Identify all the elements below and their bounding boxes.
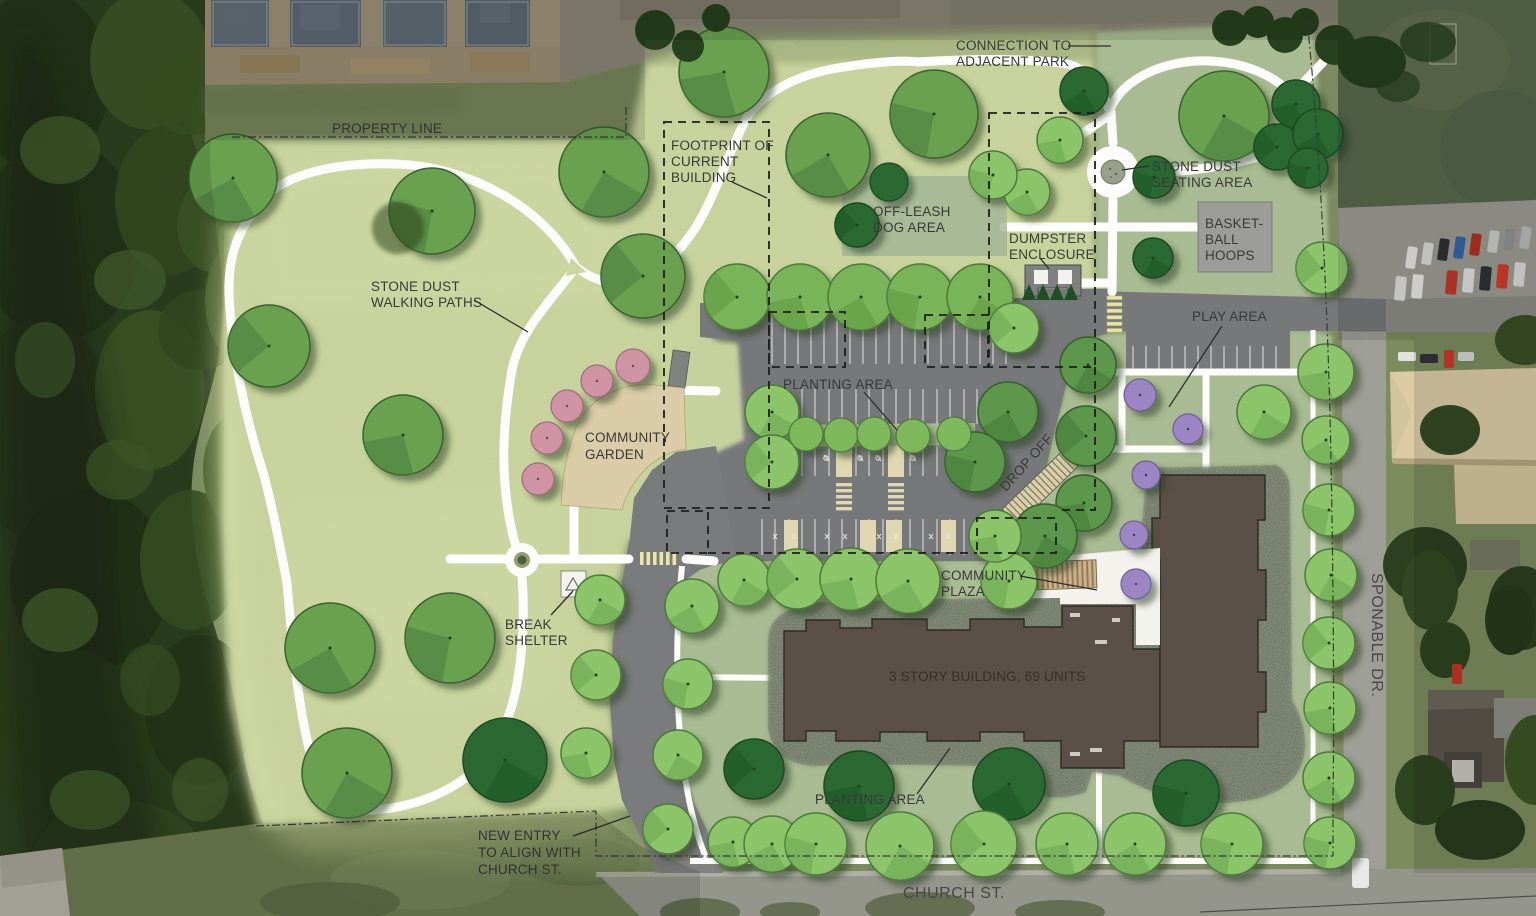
svg-text:ADJACENT PARK: ADJACENT PARK [956, 54, 1069, 69]
svg-text:STONE DUST: STONE DUST [371, 279, 460, 294]
svg-text:CURRENT: CURRENT [671, 154, 738, 169]
svg-text:BUILDING: BUILDING [671, 170, 736, 185]
svg-text:BREAK: BREAK [505, 617, 552, 632]
svg-text:PLANTING AREA: PLANTING AREA [815, 792, 925, 807]
svg-text:FOOTPRINT OF: FOOTPRINT OF [671, 138, 774, 153]
svg-text:SHELTER: SHELTER [505, 633, 568, 648]
svg-text:3 STORY BUILDING, 69 UNITS: 3 STORY BUILDING, 69 UNITS [889, 669, 1086, 684]
svg-text:PLANTING AREA: PLANTING AREA [783, 377, 893, 392]
svg-text:PLAZA: PLAZA [941, 584, 985, 599]
svg-text:ENCLOSURE: ENCLOSURE [1009, 247, 1095, 262]
svg-text:GARDEN: GARDEN [585, 447, 644, 462]
svg-text:DUMPSTER: DUMPSTER [1009, 231, 1086, 246]
svg-text:STONE DUST: STONE DUST [1152, 159, 1241, 174]
svg-text:COMMUNITY: COMMUNITY [585, 430, 670, 445]
svg-text:CONNECTION TO: CONNECTION TO [956, 38, 1071, 53]
svg-text:SEATING AREA: SEATING AREA [1152, 175, 1252, 190]
svg-text:BALL: BALL [1205, 232, 1239, 247]
svg-text:HOOPS: HOOPS [1205, 248, 1255, 263]
svg-text:SPONABLE DR.: SPONABLE DR. [1368, 573, 1385, 697]
svg-text:DOG AREA: DOG AREA [873, 220, 945, 235]
svg-text:PLAY AREA: PLAY AREA [1192, 309, 1267, 324]
svg-text:CHURCH ST.: CHURCH ST. [903, 885, 1005, 902]
svg-text:WALKING PATHS: WALKING PATHS [371, 295, 482, 310]
svg-text:COMMUNITY: COMMUNITY [941, 568, 1026, 583]
svg-text:OFF-LEASH: OFF-LEASH [873, 204, 951, 219]
svg-text:BASKET-: BASKET- [1205, 216, 1263, 231]
